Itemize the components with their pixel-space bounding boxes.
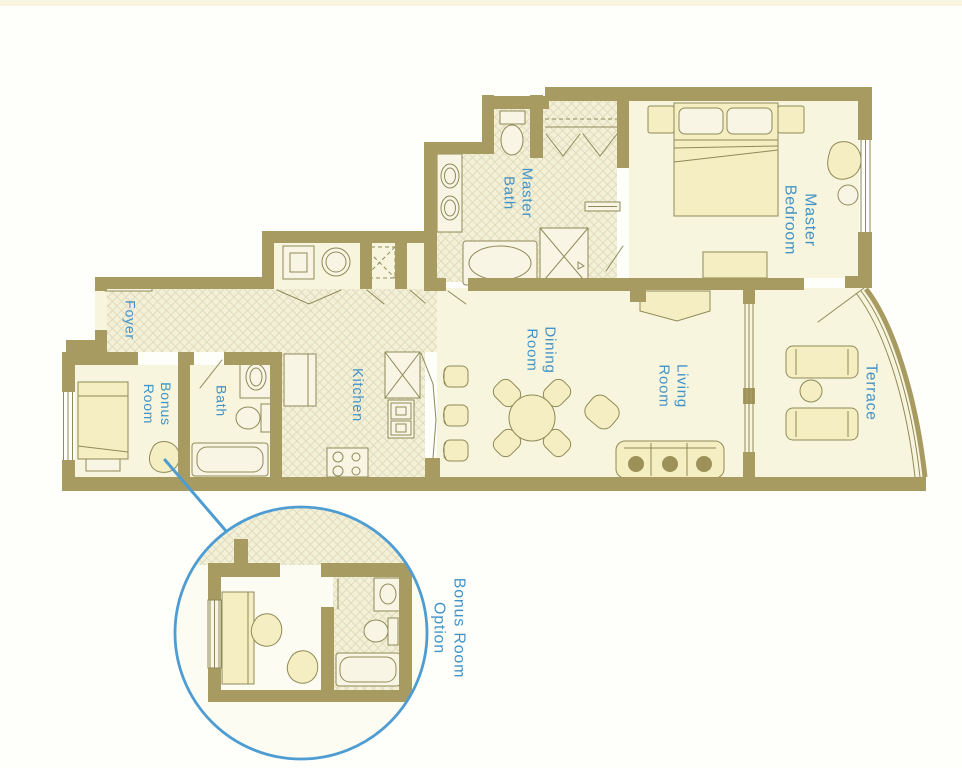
entry-opening-floor <box>95 291 107 331</box>
room-label-terrace: Terrace <box>861 363 880 420</box>
callout-window <box>208 600 221 668</box>
dining-table <box>509 395 555 441</box>
callout-sink <box>380 584 396 604</box>
kitchen-cabinet <box>284 354 316 406</box>
room-label-master-bath: Master Bath <box>499 168 536 219</box>
label-bonus-room-option: Bonus Room Option <box>429 578 468 679</box>
bed-pillow <box>727 108 772 134</box>
foyer-hall-floor <box>101 289 437 352</box>
master-toilet <box>501 125 523 155</box>
callout-toilet <box>364 620 388 642</box>
room-label-bonus-room: Bonus Room <box>140 382 174 426</box>
room-label-kitchen: Kitchen <box>347 368 365 422</box>
washer <box>283 246 314 279</box>
bonus-bed-bench <box>86 459 120 471</box>
master-toilet-tank <box>500 111 525 124</box>
callout-toilet-tank <box>388 618 398 645</box>
nightstand <box>778 106 804 133</box>
bonus-bed-headboard <box>78 382 128 396</box>
room-label-dining-room: Dining Room <box>522 326 559 373</box>
room-label-living-room: Living Room <box>654 364 691 408</box>
dresser <box>703 252 767 278</box>
bedroom-chair <box>828 142 861 180</box>
bar-stools <box>444 366 469 461</box>
bonus-room-option-callout <box>175 505 427 759</box>
bedroom-window <box>861 140 870 232</box>
bonus-room-window <box>64 392 73 460</box>
room-label-master-bedroom: Master Bedroom <box>780 185 819 256</box>
bath-toilet <box>236 407 260 429</box>
nightstand <box>648 106 674 133</box>
room-label-foyer: Foyer <box>121 300 138 340</box>
sofa-pillow <box>662 456 678 472</box>
terrace-side-table <box>800 380 822 402</box>
foyer-label-text: Foyer <box>121 300 138 340</box>
lounge-chair <box>786 346 858 378</box>
callout-chair <box>287 651 318 683</box>
floor-plan-page: Foyer Bonus Room Bath Kitchen Master Bat… <box>0 0 962 768</box>
lounge-chair <box>786 408 858 440</box>
sofa-pillow <box>696 456 712 472</box>
sofa-pillow <box>628 456 644 472</box>
bonus-bed <box>78 396 128 459</box>
bonus-chair <box>149 442 179 473</box>
ottoman <box>838 185 858 205</box>
room-label-bath: Bath <box>212 385 229 417</box>
callout-bed-desk <box>222 592 254 684</box>
callout-chair <box>251 614 282 646</box>
bed-pillow <box>679 108 723 134</box>
